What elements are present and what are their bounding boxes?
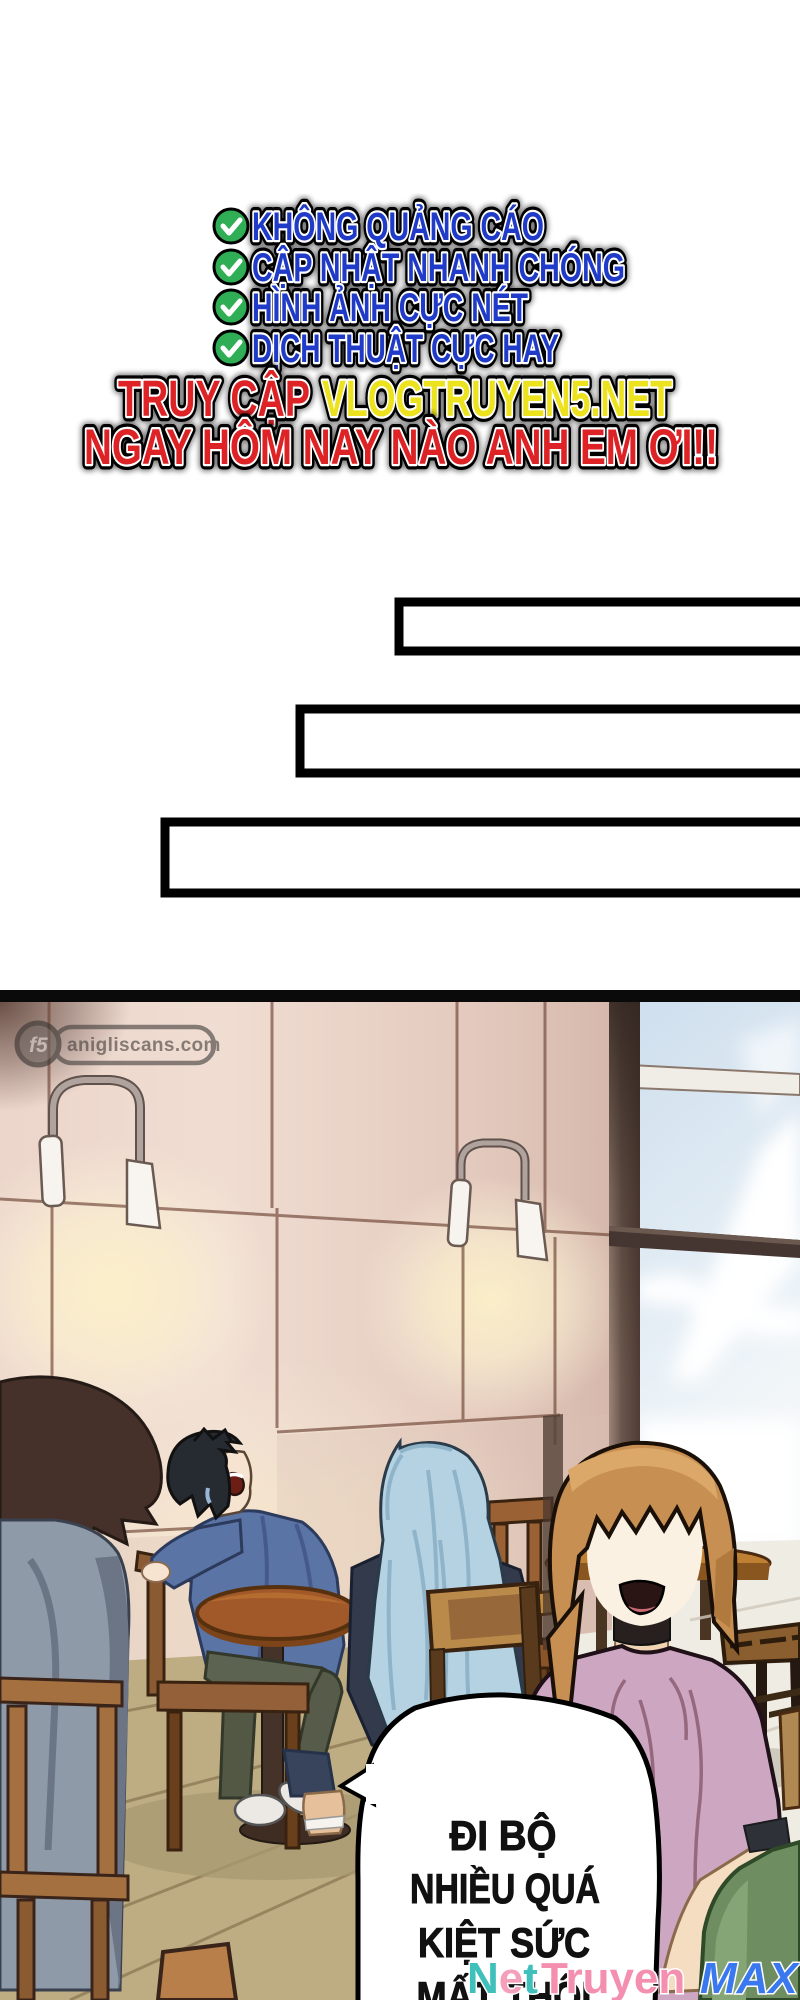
svg-text:CẬP NHẬT NHANH CHÓNG: CẬP NHẬT NHANH CHÓNG: [252, 244, 625, 290]
svg-text:ĐI BỘ: ĐI BỘ: [450, 1811, 557, 1859]
svg-text:HÌNH ẢNH CỰC NÉT: HÌNH ẢNH CỰC NÉT: [252, 284, 528, 330]
svg-text:anigliscans.com: anigliscans.com: [67, 1035, 221, 1056]
svg-text:NGAY HÔM NAY NÀO ANH EM ƠI!!: NGAY HÔM NAY NÀO ANH EM ƠI!!: [84, 418, 718, 475]
svg-text:Truyen: Truyen: [541, 1954, 685, 2000]
svg-text:KHÔNG QUẢNG CÁO: KHÔNG QUẢNG CÁO: [252, 203, 544, 249]
svg-text:f5: f5: [29, 1034, 48, 1057]
svg-text:Net: Net: [467, 1954, 538, 2000]
svg-text:DỊCH THUẬT CỰC HAY: DỊCH THUẬT CỰC HAY: [252, 325, 559, 371]
svg-text:MAX: MAX: [700, 1954, 800, 2000]
svg-text:NHIỀU QUÁ: NHIỀU QUÁ: [410, 1865, 600, 1912]
